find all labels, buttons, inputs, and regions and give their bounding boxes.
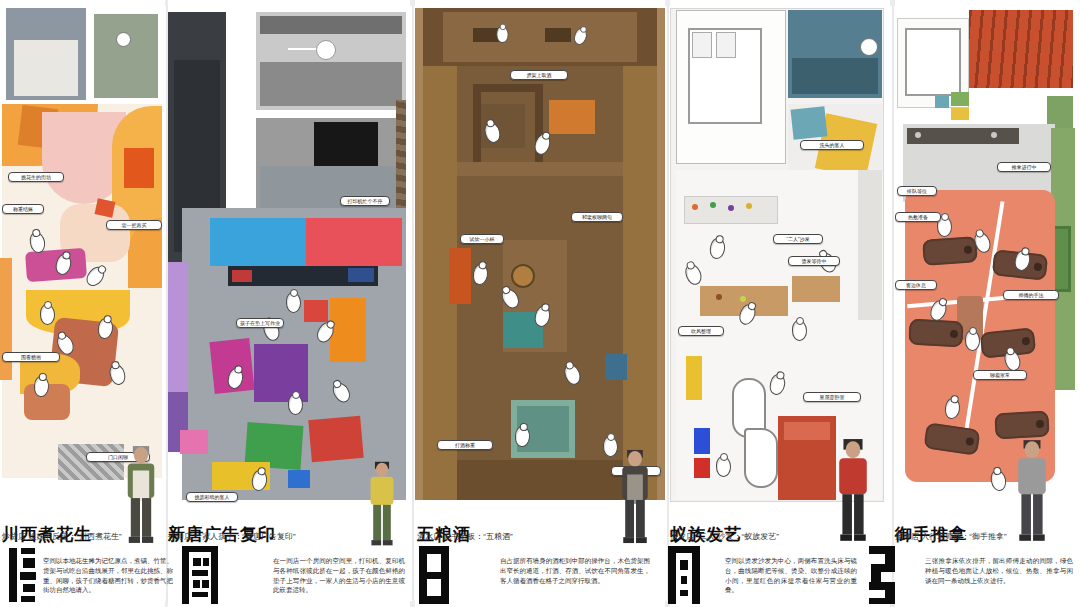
wine-shelf-right xyxy=(623,66,657,500)
photo-marker-icon xyxy=(116,32,131,47)
panel-peanut-shop: 挑花生的街坊 称重结账 尝一把再买 围看糖画 门口闲聊 川西煮花生 炒货店 姐妹… xyxy=(0,0,165,607)
annotation-bubble: 挑花生的街坊 xyxy=(8,172,64,182)
section-subtitle: 炒货店 姐妹的反应：“川西煮花生” xyxy=(2,531,122,542)
photo-ceiling-band xyxy=(260,16,402,34)
seal-stamp-icon xyxy=(182,546,218,604)
annotation-bubble: 打酒称重 xyxy=(437,440,493,450)
annotation-bubble: 排队等位 xyxy=(897,186,937,196)
seal-stamp-icon xyxy=(419,546,449,604)
wavy-sofa-lower xyxy=(744,428,778,488)
partition-band xyxy=(457,162,623,176)
counter-item xyxy=(710,202,716,208)
child-photo xyxy=(362,460,402,548)
red-basin xyxy=(694,458,710,478)
annotation-bubble: 打印机忙个不停 xyxy=(340,196,390,206)
customer-sketch-figure xyxy=(497,26,509,43)
annotation-bubble: 挑选彩纸的客人 xyxy=(186,492,238,502)
customer-sketch-figure xyxy=(716,456,731,477)
table-item xyxy=(716,294,722,300)
red-counter xyxy=(306,218,402,266)
annotation-bubble: 货架上取酒 xyxy=(510,70,568,80)
green-block xyxy=(951,92,969,106)
annotation-bubble: 和老板聊两句 xyxy=(571,212,623,222)
counter-item xyxy=(746,203,752,209)
red-mat xyxy=(308,416,363,462)
annotation-bubble: 推拿进行中 xyxy=(997,162,1051,172)
sketch-bed xyxy=(905,28,961,96)
annotation-bubble: 围看糖画 xyxy=(2,352,60,362)
yellow-cabinet xyxy=(686,356,702,400)
annotation-bubble: “二人”沙发 xyxy=(773,234,823,244)
seal-stamp-icon xyxy=(668,546,700,604)
section-subtitle: 烫发店 “二人”沙发：“蚁族发艺” xyxy=(670,531,779,542)
annotation-bubble: 窗边休息 xyxy=(895,280,937,290)
annotation-bubble: 试饮一小杯 xyxy=(460,234,504,244)
wine-barrel xyxy=(511,264,535,288)
section-description: 在一间店一个房间的空间里，打印机、复印机与各种纸张彼此挤在一起，孩子在颜色鲜艳的… xyxy=(273,556,405,595)
red-room-photo xyxy=(969,10,1073,88)
red-bed-pillow xyxy=(784,422,830,440)
photo-room-gray-floor xyxy=(14,40,78,96)
red-stool xyxy=(95,198,116,217)
blue-crate xyxy=(605,354,627,380)
annotation-bubble: 称重结账 xyxy=(2,204,44,214)
shop-owner-photo xyxy=(613,448,657,546)
desk xyxy=(545,28,571,42)
customer-sketch-figure xyxy=(286,292,301,313)
annotation-bubble: 里屋是卧室 xyxy=(803,392,861,402)
section-description: 空间以烫发沙发为中心，两侧布置洗头床与镜台，曲线隔断把等候、烫染、吹整分成连续的… xyxy=(725,556,857,595)
annotation-bubble: 洗头的客人 xyxy=(800,140,864,150)
sketch-pillow xyxy=(716,32,736,58)
panel-hair-salon: 洗头的客人 “二人”沙发 烫发等待中 吹风整理 里屋是卧室 蚁族发艺 烫发店 “… xyxy=(670,0,890,607)
annotation-bubble: 热敷准备 xyxy=(895,212,941,222)
section-subtitle: 酒水店 说书老板：“五粮酒” xyxy=(417,531,513,542)
counter-item xyxy=(915,132,921,138)
reception-counter xyxy=(907,128,1019,144)
customer-sketch-figure xyxy=(288,394,303,415)
floorplan-massage-shop: 推拿进行中 排队等位 热敷准备 窗边休息 师傅的手法 聊着家常 xyxy=(895,8,1080,508)
customer-sketch-figure xyxy=(792,320,807,341)
booth-wall xyxy=(473,84,481,162)
desk xyxy=(473,28,499,42)
section-subtitle: 按摩店 入行老师傅：“御手推拿” xyxy=(895,531,1007,542)
photo-floor-band xyxy=(260,62,402,106)
blue-basin xyxy=(694,428,710,454)
wood-table-small xyxy=(792,276,840,302)
column-gutter xyxy=(667,6,669,601)
table-item xyxy=(740,296,746,302)
counter-item xyxy=(692,204,698,210)
massage-table xyxy=(994,411,1049,440)
annotation-bubble: 孩子在垫上写作业 xyxy=(236,318,284,328)
side-shelves xyxy=(858,170,882,320)
shopkeeper-photo xyxy=(118,444,164,546)
counter-item xyxy=(991,132,997,138)
lavender-cabinet xyxy=(168,262,188,392)
dark-panel xyxy=(314,122,378,166)
annotation-bubble: 尝一把再买 xyxy=(106,220,162,230)
panel-wine-shop: 货架上取酒 和老板聊两句 试饮一小杯 打酒称重 柜台结账 五粮酒 酒水店 说书老… xyxy=(415,0,665,607)
massage-table xyxy=(922,236,978,266)
red-box xyxy=(304,300,328,322)
panel-massage-shop: 推拿进行中 排队等位 热敷准备 窗边休息 师傅的手法 聊着家常 御手推拿 按摩店… xyxy=(895,0,1080,607)
annotation-bubble: 聊着家常 xyxy=(973,370,1027,380)
annotation-bubble: 师傅的手法 xyxy=(1003,290,1059,300)
orange-accent xyxy=(449,248,471,304)
blue-mat xyxy=(288,470,310,488)
orange-table xyxy=(549,100,595,134)
yellow-block xyxy=(951,108,969,120)
floorplan-print-shop: 打印机忙个不停 孩子在垫上写作业 挑选彩纸的客人 xyxy=(168,8,410,508)
orange-mat xyxy=(330,298,366,362)
bottom-dark-band xyxy=(457,460,623,500)
stylist-photo xyxy=(830,438,876,544)
floorplan-hair-salon: 洗头的客人 “二人”沙发 烫发等待中 吹风整理 里屋是卧室 xyxy=(670,8,890,508)
section-description: 自占据所有墙身的酒柜到中部的操作台，木色货架围出窄长的通道，打酒、存酒、试饮在不… xyxy=(500,556,650,585)
herringbone-entry-mat xyxy=(58,444,124,480)
customer-sketch-figure xyxy=(965,330,980,351)
printer-blue xyxy=(348,268,374,282)
column-gutter xyxy=(892,6,894,601)
section-description: 空间以本地花生摊为记忆原点，煮锅、竹筐、货架与试吃台沿曲线展开，邻里在此挑拣、称… xyxy=(43,556,173,595)
annotation-bubble: 吹风整理 xyxy=(678,326,724,336)
seal-stamp-icon xyxy=(865,546,899,604)
column-gutter xyxy=(412,6,414,601)
blue-counter xyxy=(210,218,306,266)
floorplan-peanut-shop: 挑花生的街坊 称重结账 尝一把再买 围看糖画 门口闲聊 xyxy=(0,8,165,508)
pink-mat xyxy=(180,430,208,454)
massage-table xyxy=(908,319,963,348)
printer-red xyxy=(232,270,252,282)
floorplan-wine-shop: 货架上取酒 和老板聊两句 试饮一小杯 打酒称重 柜台结账 xyxy=(415,8,665,508)
deep-orange-booth xyxy=(124,148,154,188)
panel-print-shop: 打印机忙个不停 孩子在垫上写作业 挑选彩纸的客人 新唐广告复印 打印店 一家人孩… xyxy=(168,0,410,607)
photo-room-green xyxy=(94,14,158,98)
booth-wall xyxy=(473,84,543,92)
bathroom-floor xyxy=(792,58,878,94)
sketch-pillow xyxy=(692,32,712,58)
counter-item xyxy=(728,205,734,211)
photo-marker-icon xyxy=(860,38,878,56)
customer-sketch-figure xyxy=(40,304,55,325)
lamp-icon xyxy=(316,40,336,60)
teal-mat xyxy=(791,106,828,139)
section-subtitle: 打印店 一家人孩子：“新唐广告复印” xyxy=(168,531,296,542)
masseur-photo xyxy=(1009,438,1055,544)
seal-stamp-icon xyxy=(7,546,38,604)
teal-block xyxy=(935,96,949,108)
annotation-bubble: 烫发等待中 xyxy=(788,256,840,266)
section-description: 三张推拿床依次排开，留出师傅走动的间隙，绿色种植与暖色地面让人放松，候位、热敷、… xyxy=(925,556,1073,585)
